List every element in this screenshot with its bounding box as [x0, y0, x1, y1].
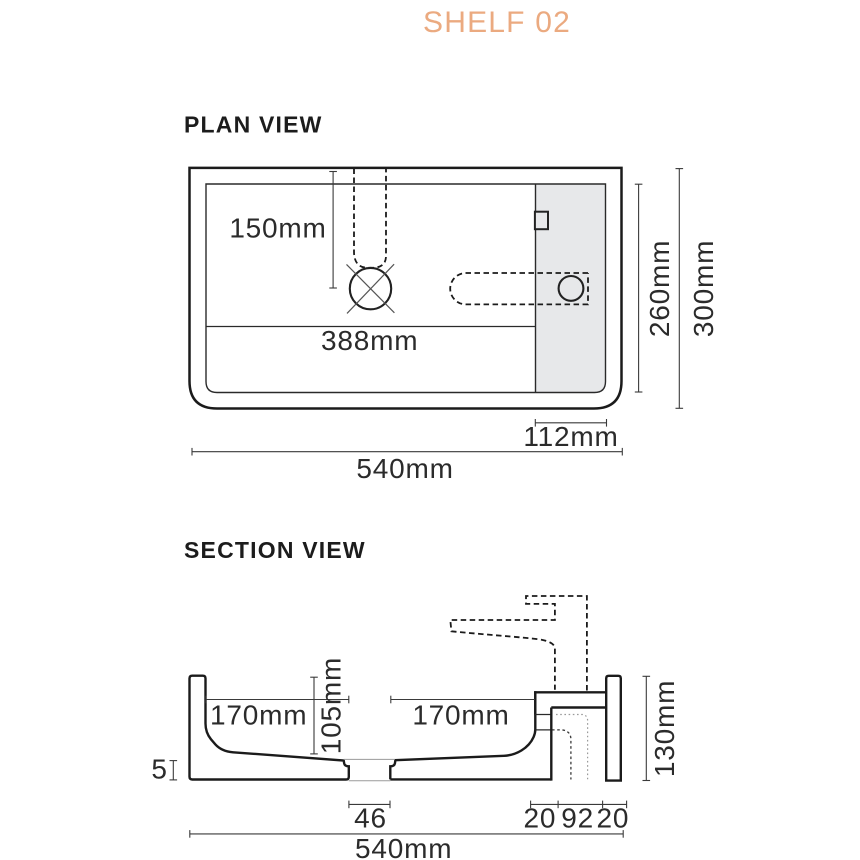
svg-text:20: 20 — [524, 803, 557, 834]
svg-text:300mm: 300mm — [688, 240, 719, 337]
svg-text:92: 92 — [561, 803, 594, 834]
svg-text:PLAN VIEW: PLAN VIEW — [184, 111, 323, 137]
svg-text:170mm: 170mm — [210, 700, 307, 731]
svg-text:112mm: 112mm — [523, 421, 618, 452]
svg-text:105mm: 105mm — [316, 657, 347, 754]
svg-text:130mm: 130mm — [649, 680, 680, 777]
svg-text:540mm: 540mm — [356, 453, 453, 484]
svg-text:SECTION VIEW: SECTION VIEW — [184, 537, 366, 563]
svg-text:20: 20 — [597, 803, 630, 834]
svg-text:150mm: 150mm — [229, 213, 326, 244]
svg-text:5: 5 — [151, 754, 167, 785]
svg-text:SHELF 02: SHELF 02 — [423, 6, 571, 39]
svg-text:260mm: 260mm — [644, 240, 675, 337]
svg-text:540mm: 540mm — [355, 833, 452, 860]
svg-text:46: 46 — [354, 803, 387, 834]
svg-text:170mm: 170mm — [412, 700, 509, 731]
svg-text:388mm: 388mm — [321, 325, 418, 356]
